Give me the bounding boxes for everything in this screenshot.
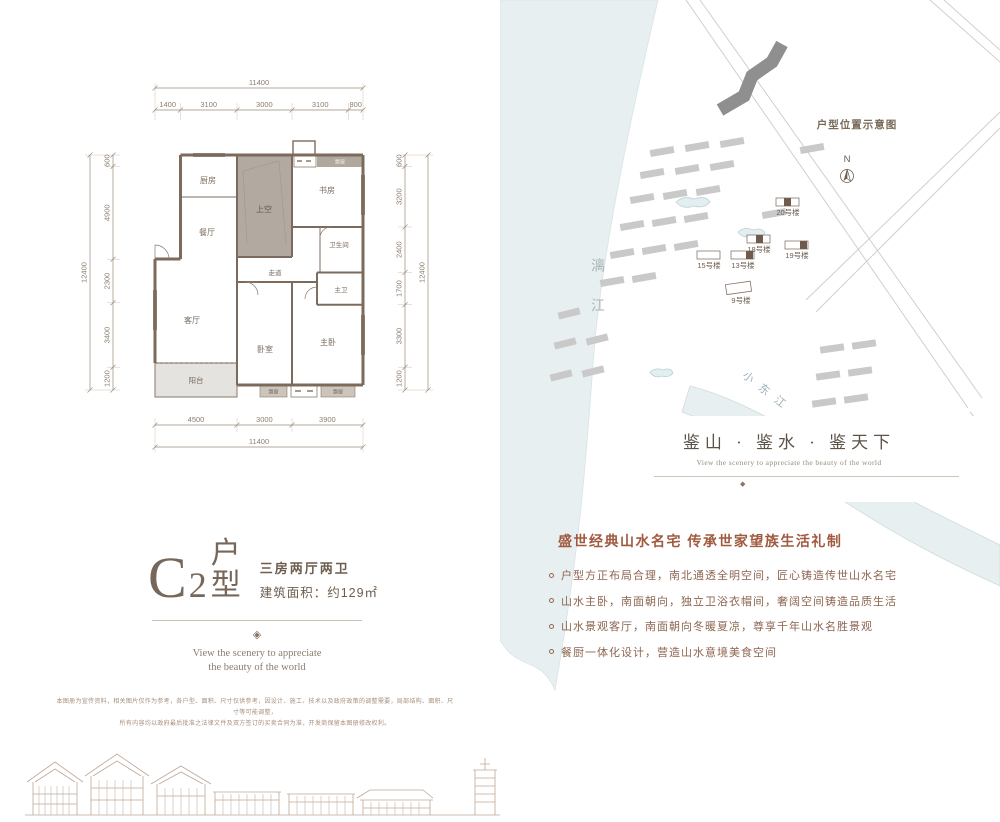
label-building-20: 20号楼 bbox=[776, 207, 800, 217]
dim-top-5: 800 bbox=[349, 100, 362, 109]
room-bedroom: 卧室 bbox=[257, 344, 273, 354]
highlight-building-cluster bbox=[720, 44, 782, 110]
room-kitchen: 厨房 bbox=[200, 175, 216, 185]
slogan-rule bbox=[654, 476, 959, 477]
dim-left-2: 4900 bbox=[103, 204, 112, 221]
unit-tagline: View the scenery to appreciate the beaut… bbox=[152, 647, 362, 675]
label-building-15: 15号楼 bbox=[697, 260, 721, 270]
dim-bottom-total: 11400 bbox=[249, 437, 269, 446]
unit-title-block: C 2 户型 三房两厅两卫 建筑面积：约129㎡ ◈ View the scen… bbox=[148, 538, 378, 675]
bullet-circle-icon bbox=[549, 649, 554, 654]
unit-series-suffix: 户型 bbox=[211, 538, 248, 602]
room-dining: 餐厅 bbox=[199, 228, 215, 237]
dim-bottom-2: 3000 bbox=[256, 415, 273, 424]
unit-area-text: 建筑面积：约129㎡ bbox=[260, 582, 378, 601]
dim-top-2: 3100 bbox=[200, 100, 217, 109]
bullet-circle-icon bbox=[549, 573, 554, 578]
dim-top-total: 11400 bbox=[249, 78, 269, 87]
dim-right-6: 1200 bbox=[395, 370, 404, 387]
compass-needle-dark bbox=[844, 169, 848, 181]
slogan-ornament-icon: ◆ bbox=[740, 480, 745, 488]
room-void: 上空 bbox=[256, 204, 272, 214]
lattice-ornament-icon: ◈ bbox=[152, 630, 362, 641]
compass: N bbox=[841, 154, 854, 183]
room-corridor: 走道 bbox=[269, 268, 283, 277]
label-bay-1: 飘窗 bbox=[268, 389, 278, 396]
features-block: 盛世经典山水名宅 传承世家望族生活礼制 户型方正布局合理，南北通透全明空间，匠心… bbox=[540, 531, 990, 669]
unit-title-row: C 2 户型 三房两厅两卫 建筑面积：约129㎡ bbox=[148, 538, 378, 602]
label-building-19: 19号楼 bbox=[785, 250, 809, 260]
building-20 bbox=[776, 198, 799, 206]
building-18 bbox=[747, 235, 770, 243]
river-li-label: 漓江 bbox=[588, 258, 608, 338]
title-rule bbox=[152, 620, 362, 621]
brochure-page: 11400 1400 3100 3000 3100 800 12400 600 … bbox=[0, 0, 1000, 822]
label-building-18: 18号楼 bbox=[747, 244, 771, 254]
dim-left-3: 2300 bbox=[103, 273, 112, 290]
skyline-illustration bbox=[25, 742, 500, 817]
feature-item: 山水景观客厅，南面朝向冬暖夏凉，尊享千年山水名胜景观 bbox=[540, 618, 990, 634]
dim-right-1: 600 bbox=[395, 154, 404, 167]
dimension-guides bbox=[85, 83, 433, 452]
label-building-9: 9号楼 bbox=[731, 295, 751, 305]
disclaimer-line2: 所有内容均以政府最后批准之法律文件及双方签订的买卖合同为准，开发商保留本图册修改… bbox=[55, 719, 455, 730]
dim-top-3: 3000 bbox=[256, 100, 273, 109]
dim-top-1: 1400 bbox=[159, 100, 176, 109]
floorplan-drawing: 11400 1400 3100 3000 3100 800 12400 600 … bbox=[65, 75, 475, 480]
bullet-circle-icon bbox=[549, 598, 554, 603]
roads bbox=[686, 0, 1000, 460]
room-master-bedroom: 主卧 bbox=[320, 337, 336, 347]
dimension-labels: 11400 1400 3100 3000 3100 800 12400 600 … bbox=[80, 78, 427, 446]
dim-right-2: 3200 bbox=[395, 188, 404, 205]
slogan-box: 鉴山 · 鉴水 · 鉴天下 View the scenery to apprec… bbox=[640, 416, 1000, 502]
ac-unit-box bbox=[291, 385, 317, 397]
slogan-title: 鉴山 · 鉴水 · 鉴天下 bbox=[640, 428, 1000, 453]
dim-top-4: 3100 bbox=[312, 100, 329, 109]
feature-text-4: 餐厨一体化设计，营造山水意境美食空间 bbox=[561, 644, 777, 660]
building-9 bbox=[725, 281, 751, 294]
label-bay-top: 飘窗 bbox=[335, 159, 345, 166]
dim-right-3: 2400 bbox=[395, 241, 404, 258]
unit-series-number: 2 bbox=[189, 568, 207, 602]
disclaimer-line1: 本图册为宣传资料，相关图片仅作为参考，各户型、面积、尺寸仅供参考，因设计、施工、… bbox=[55, 697, 455, 719]
feature-text-3: 山水景观客厅，南面朝向冬暖夏凉，尊享千年山水名胜景观 bbox=[561, 618, 873, 634]
compass-n-label: N bbox=[844, 154, 851, 165]
room-balcony: 阳台 bbox=[189, 375, 204, 385]
site-map-drawing: 20号楼 19号楼 18号楼 15号楼 13号楼 9号楼 户型位置示意图 N bbox=[500, 0, 1000, 822]
building-15 bbox=[697, 251, 720, 259]
flue-box bbox=[293, 141, 315, 155]
tagline-line1: View the scenery to appreciate bbox=[152, 647, 362, 661]
dimension-lines bbox=[88, 86, 431, 450]
features-list: 户型方正布局合理，南北通透全明空间，匠心铸造传世山水名宅 山水主卧，南面朝向，独… bbox=[540, 567, 990, 660]
compass-needle-light bbox=[847, 169, 851, 181]
feature-text-1: 户型方正布局合理，南北通透全明空间，匠心铸造传世山水名宅 bbox=[561, 567, 897, 583]
unit-layout-text: 三房两厅两卫 bbox=[260, 558, 378, 577]
slogan-subtitle: View the scenery to appreciate the beaut… bbox=[640, 458, 1000, 467]
label-building-13: 13号楼 bbox=[731, 260, 755, 270]
label-bay-2: 飘窗 bbox=[333, 389, 343, 396]
dim-left-4: 3400 bbox=[103, 327, 112, 344]
disclaimer-text: 本图册为宣传资料，相关图片仅作为参考，各户型、面积、尺寸仅供参考，因设计、施工、… bbox=[55, 697, 455, 730]
dim-right-total: 12400 bbox=[418, 262, 427, 283]
dim-left-1: 600 bbox=[103, 154, 112, 167]
feature-item: 餐厨一体化设计，营造山水意境美食空间 bbox=[540, 644, 990, 660]
dim-right-4: 1700 bbox=[395, 280, 404, 297]
unit-specs: 三房两厅两卫 建筑面积：约129㎡ bbox=[260, 558, 378, 602]
dim-left-total: 12400 bbox=[80, 262, 89, 283]
room-study: 书房 bbox=[319, 185, 335, 195]
dim-bottom-1: 4500 bbox=[188, 415, 205, 424]
room-master-bath: 主卫 bbox=[335, 285, 349, 294]
dim-left-5: 1200 bbox=[103, 370, 112, 387]
building-19 bbox=[785, 241, 808, 249]
unit-series-letter: C bbox=[148, 554, 187, 602]
dim-right-5: 3300 bbox=[395, 328, 404, 345]
bullet-circle-icon bbox=[549, 624, 554, 629]
room-living: 客厅 bbox=[184, 315, 200, 325]
dim-bottom-3: 3900 bbox=[319, 415, 336, 424]
features-heading: 盛世经典山水名宅 传承世家望族生活礼制 bbox=[558, 531, 990, 551]
feature-text-2: 山水主卧，南面朝向，独立卫浴衣帽间，奢阔空间铸造品质生活 bbox=[561, 593, 897, 609]
tagline-line2: the beauty of the world bbox=[152, 661, 362, 675]
room-bathroom: 卫生间 bbox=[329, 240, 349, 249]
feature-item: 山水主卧，南面朝向，独立卫浴衣帽间，奢阔空间铸造品质生活 bbox=[540, 593, 990, 609]
map-title: 户型位置示意图 bbox=[816, 118, 898, 131]
site-map-panel: 20号楼 19号楼 18号楼 15号楼 13号楼 9号楼 户型位置示意图 N 漓… bbox=[500, 0, 1000, 822]
feature-item: 户型方正布局合理，南北通透全明空间，匠心铸造传世山水名宅 bbox=[540, 567, 990, 583]
